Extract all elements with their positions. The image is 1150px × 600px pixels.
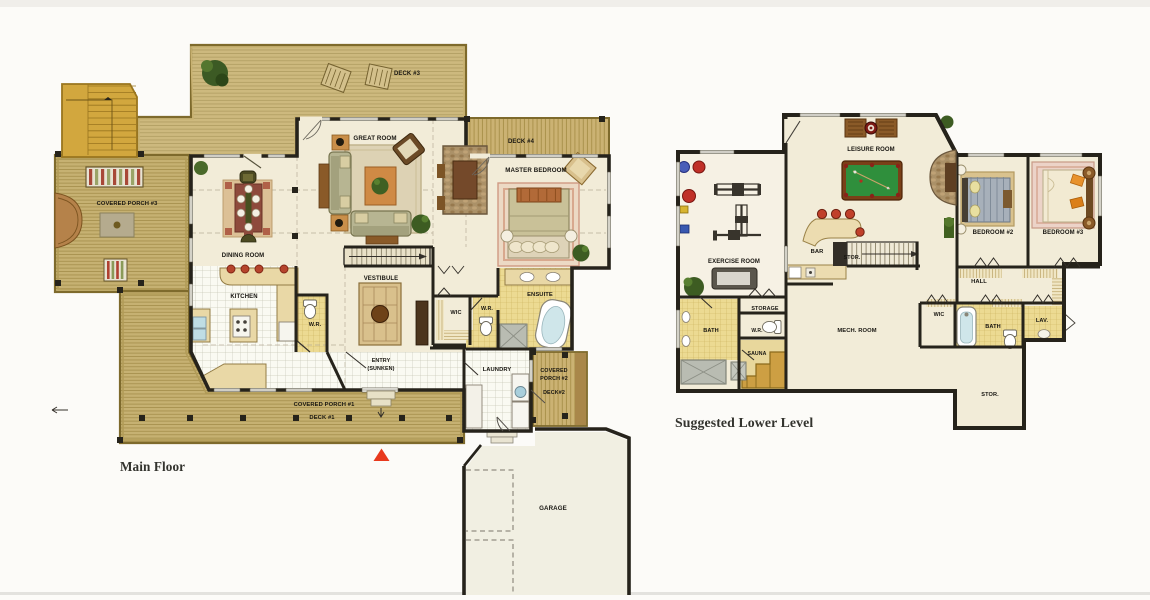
svg-text:COVERED PORCH #1: COVERED PORCH #1 xyxy=(294,402,356,408)
svg-text:DECK#2: DECK#2 xyxy=(543,390,565,396)
svg-text:(SUNKEN): (SUNKEN) xyxy=(367,366,394,372)
svg-text:KITCHEN: KITCHEN xyxy=(230,294,257,300)
svg-text:WIC: WIC xyxy=(934,312,945,318)
svg-text:STOR.: STOR. xyxy=(981,392,999,398)
svg-text:BATH: BATH xyxy=(703,328,719,334)
svg-text:DECK #3: DECK #3 xyxy=(394,71,421,77)
svg-text:GREAT ROOM: GREAT ROOM xyxy=(353,135,396,142)
svg-text:ENTRY: ENTRY xyxy=(372,358,391,364)
svg-text:SAUNA: SAUNA xyxy=(748,351,767,357)
svg-text:PORCH #2: PORCH #2 xyxy=(540,376,568,382)
svg-text:WIC: WIC xyxy=(450,310,461,316)
svg-text:Suggested Lower Level: Suggested Lower Level xyxy=(675,415,813,430)
svg-text:Main Floor: Main Floor xyxy=(120,459,185,474)
svg-text:LAUNDRY: LAUNDRY xyxy=(483,367,512,373)
svg-text:W.R.: W.R. xyxy=(751,328,763,334)
svg-text:MASTER BEDROOM: MASTER BEDROOM xyxy=(505,167,567,174)
svg-text:VESTIBULE: VESTIBULE xyxy=(364,276,399,282)
svg-text:BATH: BATH xyxy=(985,324,1001,330)
svg-text:ENSUITE: ENSUITE xyxy=(527,292,553,298)
svg-text:W.R.: W.R. xyxy=(309,322,322,328)
svg-text:BAR: BAR xyxy=(811,249,825,255)
svg-text:DINING ROOM: DINING ROOM xyxy=(222,253,264,259)
svg-text:COVERED: COVERED xyxy=(540,368,567,374)
svg-text:DECK #4: DECK #4 xyxy=(508,139,535,145)
svg-text:LAV.: LAV. xyxy=(1036,318,1049,324)
svg-text:DECK #1: DECK #1 xyxy=(309,415,335,421)
svg-text:MECH. ROOM: MECH. ROOM xyxy=(837,328,876,334)
svg-text:HALL: HALL xyxy=(971,279,987,285)
svg-text:BEDROOM #3: BEDROOM #3 xyxy=(1043,230,1084,236)
svg-text:STORAGE: STORAGE xyxy=(751,306,779,312)
svg-text:BEDROOM #2: BEDROOM #2 xyxy=(973,230,1014,236)
svg-text:EXERCISE ROOM: EXERCISE ROOM xyxy=(708,259,760,265)
svg-text:LEISURE ROOM: LEISURE ROOM xyxy=(847,147,895,153)
svg-text:COVERED PORCH #3: COVERED PORCH #3 xyxy=(97,201,159,207)
svg-text:STOR.: STOR. xyxy=(844,255,861,261)
svg-text:W.R.: W.R. xyxy=(481,306,493,312)
svg-text:GARAGE: GARAGE xyxy=(539,505,567,512)
